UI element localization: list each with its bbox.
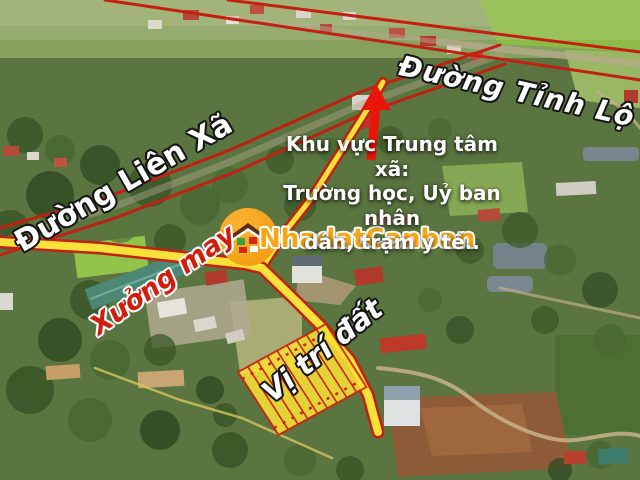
town-center-note-line1: Khu vực Trung tâm xã: bbox=[270, 132, 514, 181]
screenshot-root: NhadatCanban com.vn Đường Tỉnh Lộ 5 Đườn… bbox=[0, 0, 640, 480]
town-center-note-line3: dân, trạm y tế.. bbox=[270, 230, 514, 255]
town-center-note: Khu vực Trung tâm xã: Trường học, Uỷ ban… bbox=[270, 132, 514, 255]
town-center-note-line2: Trường học, Uỷ ban nhân bbox=[270, 181, 514, 230]
